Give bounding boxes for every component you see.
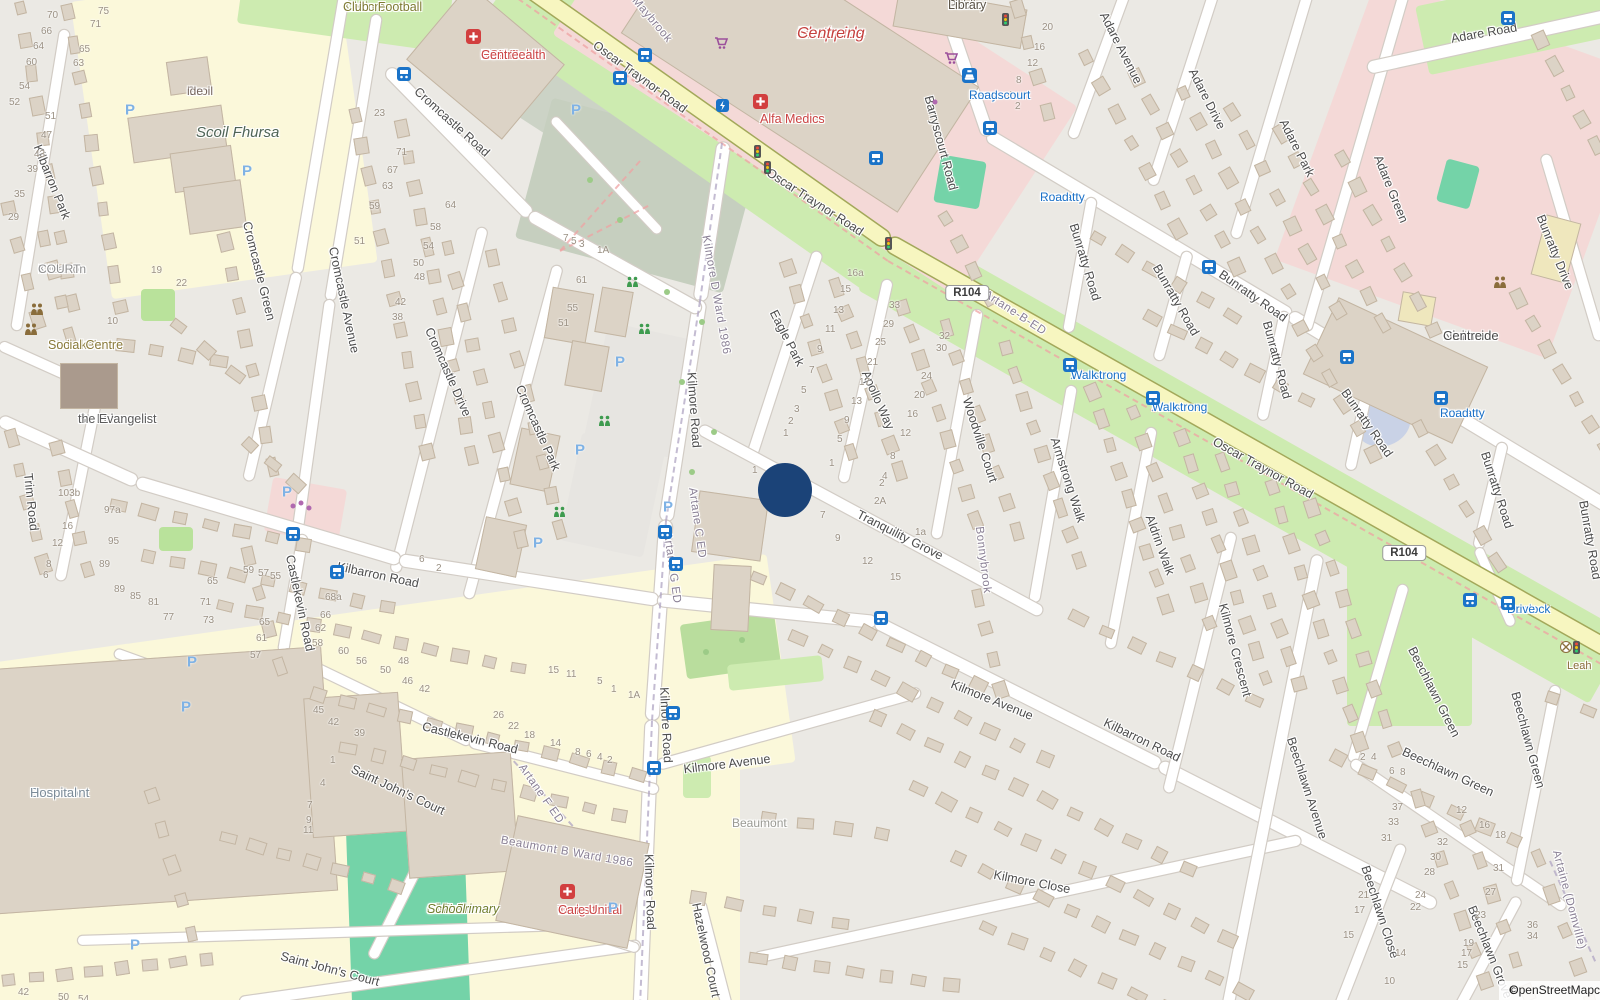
transit-stop-label-line: Road	[1440, 406, 1469, 420]
house-number: 23	[1475, 910, 1486, 921]
poi-label-line: Beaumont	[732, 816, 787, 830]
poi-label-line: Club	[343, 0, 369, 15]
house-number: 42	[419, 684, 430, 695]
shop-dot-icon	[299, 501, 304, 506]
house-number: 57	[258, 568, 269, 579]
house	[1222, 307, 1242, 324]
house	[138, 502, 160, 521]
parking-icon: P	[575, 442, 585, 459]
parking-icon: P	[130, 937, 140, 954]
route-ref-badge: R104	[1382, 545, 1426, 561]
house	[350, 592, 366, 609]
house-number: 8	[890, 451, 896, 462]
poi-label-line: Centre	[797, 25, 845, 44]
house-number: 16	[1479, 820, 1490, 831]
parking-icon: P	[181, 699, 191, 716]
landuse-area	[159, 527, 193, 551]
house	[903, 324, 920, 344]
house-number: 12	[862, 556, 873, 567]
house	[414, 208, 429, 227]
house-number: 51	[45, 111, 56, 122]
tree-icon	[664, 289, 670, 295]
house	[979, 920, 998, 936]
house-number: 26	[493, 710, 504, 721]
parking-icon: P	[615, 354, 625, 371]
house	[1196, 291, 1215, 309]
house-number: 50	[58, 992, 69, 1000]
house-number: 6	[43, 570, 49, 581]
house	[202, 518, 220, 532]
house-number: 67	[387, 165, 398, 176]
parking-icon: P	[125, 102, 135, 119]
house-number: 71	[90, 19, 101, 30]
level-crossing-icon	[1560, 641, 1574, 655]
house	[1127, 986, 1148, 1000]
house-number: 64	[33, 41, 44, 52]
house-number: 21	[867, 357, 878, 368]
house-number: 2	[436, 563, 442, 574]
house-number: 1	[611, 684, 617, 695]
house	[934, 791, 957, 812]
house	[796, 909, 813, 925]
house-number: 71	[396, 147, 407, 158]
house	[1071, 551, 1087, 570]
house-number: 6	[419, 554, 425, 565]
street-name-label: Kilmore Road	[684, 372, 703, 449]
house	[393, 636, 409, 651]
house	[949, 849, 966, 866]
house-number: 22	[508, 721, 519, 732]
house	[1509, 951, 1523, 968]
house-number: 32	[1437, 837, 1448, 848]
house	[450, 647, 470, 664]
house-number: 59	[243, 565, 254, 576]
house	[931, 404, 946, 422]
transit-stop-label-line: Road	[1040, 190, 1069, 204]
house	[142, 958, 159, 971]
location-marker[interactable]	[758, 463, 812, 517]
house	[1133, 889, 1154, 907]
house-number: 9	[835, 533, 841, 544]
poi-label-line: Centre	[481, 48, 519, 63]
house	[1230, 590, 1244, 606]
poi-label-line: Scoil Fhursa	[196, 124, 279, 142]
house-number: 1a	[915, 527, 926, 538]
road	[11, 29, 70, 331]
house	[1021, 35, 1035, 50]
house	[1270, 618, 1289, 639]
house	[29, 972, 45, 983]
house	[401, 351, 413, 369]
house	[370, 747, 386, 764]
house-number: 33	[889, 300, 900, 311]
house-number: 20	[914, 390, 925, 401]
house	[56, 966, 75, 981]
house	[1078, 48, 1094, 65]
house-number: 75	[98, 6, 109, 17]
house	[870, 670, 890, 687]
house-number: 43	[34, 149, 45, 160]
house	[1233, 508, 1249, 527]
house-number: 17	[1461, 948, 1472, 959]
map-canvas[interactable]: Oscar Traynor RoadOscar Traynor RoadOsca…	[0, 0, 1600, 1000]
house	[464, 445, 479, 466]
bus-stop-icon	[1434, 391, 1448, 405]
house	[1020, 833, 1042, 852]
house-number: 48	[398, 656, 409, 667]
house	[245, 363, 259, 379]
house-number: 31	[1381, 833, 1392, 844]
house	[1121, 833, 1142, 850]
house	[21, 273, 35, 292]
tree-icon	[739, 637, 745, 643]
house	[1597, 439, 1600, 459]
house	[1312, 618, 1329, 639]
taxi-rank-icon	[962, 68, 976, 82]
house-number: 30	[1430, 852, 1441, 863]
house	[1169, 524, 1185, 541]
house	[979, 722, 1001, 741]
house	[353, 136, 369, 155]
house-number: 29	[883, 319, 894, 330]
poi-label-line: COURT	[38, 262, 80, 276]
house-number: 42	[328, 717, 339, 728]
house	[1051, 849, 1068, 865]
house	[264, 455, 283, 473]
shop-dot-icon	[307, 506, 312, 511]
house-number: 15	[1343, 930, 1354, 941]
shop-dot-icon	[933, 100, 938, 105]
house	[998, 493, 1016, 512]
house-number: 7	[809, 365, 815, 376]
house-number: 58	[430, 222, 441, 233]
house	[1581, 414, 1600, 434]
house	[1016, 391, 1033, 412]
house	[1324, 649, 1338, 665]
house-number: 64	[445, 200, 456, 211]
house	[1263, 592, 1277, 609]
house	[37, 229, 51, 247]
house-number: 1	[783, 428, 789, 439]
house	[1205, 970, 1225, 986]
parking-icon: P	[533, 535, 543, 552]
bus-stop-icon	[658, 525, 672, 539]
bus-stop-icon	[330, 565, 344, 579]
house	[464, 337, 480, 352]
supermarket-icon	[944, 51, 958, 65]
house	[880, 969, 894, 983]
house	[1119, 929, 1140, 946]
house	[1067, 608, 1089, 627]
house-number: 10	[107, 316, 118, 327]
house	[787, 629, 808, 647]
house	[172, 511, 188, 525]
house	[72, 531, 87, 546]
openstreetmap-link[interactable]: OpenStreetMap	[1509, 983, 1594, 997]
house	[1170, 148, 1189, 168]
house	[845, 965, 865, 978]
house	[1258, 670, 1272, 686]
house	[993, 821, 1012, 837]
house	[1149, 942, 1167, 960]
house-number: 19	[151, 265, 162, 276]
house-number: 61	[576, 275, 587, 286]
house-number: 30	[936, 343, 947, 354]
house-number: 42	[395, 297, 406, 308]
poi-label-line: Alfa Medics	[760, 112, 825, 127]
house-number: 60	[338, 646, 349, 657]
building	[710, 564, 751, 632]
house	[1034, 445, 1052, 463]
house-number: 85	[130, 591, 141, 602]
bus-stop-icon	[669, 557, 683, 571]
tree-icon	[617, 217, 623, 223]
house	[1217, 166, 1239, 189]
street-name-label: Kilmore Road	[642, 854, 659, 930]
house-number: 11	[825, 324, 835, 335]
house-number: 70	[47, 10, 58, 21]
tree-icon	[711, 429, 717, 435]
playground-icon	[638, 323, 652, 337]
house-number: 66	[41, 26, 52, 37]
house	[251, 394, 268, 412]
street-name-label: Adare Park	[1277, 117, 1318, 179]
house	[18, 32, 33, 49]
house	[394, 118, 410, 138]
house-number: 48	[414, 272, 425, 283]
traffic-signal-icon	[1572, 641, 1586, 655]
house-number: 16	[907, 409, 918, 420]
house	[1091, 915, 1111, 934]
house	[960, 377, 975, 395]
house-number: 2	[1015, 101, 1021, 112]
house-number: 8	[1016, 75, 1022, 86]
house	[1115, 244, 1136, 264]
charging-station-icon	[716, 99, 730, 113]
poi-label-line: Social Centre	[48, 338, 123, 353]
house	[83, 134, 99, 152]
house-number: 60	[26, 57, 37, 68]
house	[1569, 391, 1584, 407]
bus-stop-icon	[1501, 11, 1515, 25]
parking-icon: P	[571, 102, 581, 119]
supermarket-icon	[714, 36, 728, 50]
house-number: 8	[46, 559, 52, 570]
house	[484, 248, 499, 267]
transit-stop-label-line: Road	[969, 88, 998, 102]
poi-label-line: Leah	[1567, 660, 1591, 673]
house	[1248, 641, 1264, 662]
house-number: 42	[18, 987, 29, 998]
traffic-signal-icon	[763, 161, 777, 175]
house-number: 36	[1527, 920, 1538, 931]
map-attribution: © OpenStreetMap contributors	[1499, 981, 1600, 1000]
road	[754, 835, 1301, 963]
house	[611, 808, 628, 823]
house	[869, 709, 887, 727]
house-number: 37	[1392, 802, 1403, 813]
building	[183, 179, 247, 235]
house-number: 32	[939, 331, 950, 342]
house	[1269, 188, 1286, 206]
house	[170, 556, 186, 569]
house	[1008, 777, 1029, 797]
house	[225, 364, 247, 384]
house	[986, 651, 1000, 668]
house-number: 56	[356, 656, 367, 667]
house	[1067, 807, 1084, 822]
house-number: 61	[256, 633, 267, 644]
house-number: 63	[73, 58, 84, 69]
house	[1124, 135, 1139, 151]
house-number: 45	[313, 705, 324, 716]
house-number: 24	[1415, 890, 1426, 901]
house	[54, 230, 68, 245]
medical-icon	[560, 884, 574, 898]
house-number: 5	[597, 676, 603, 687]
house-number: 71	[200, 597, 211, 608]
house	[1458, 500, 1475, 518]
house	[1111, 462, 1129, 481]
house	[1298, 392, 1316, 408]
house	[1061, 525, 1078, 543]
shop-dot-icon	[291, 504, 296, 509]
house	[29, 96, 46, 117]
house-number: 55	[270, 571, 281, 582]
house	[1154, 190, 1171, 210]
house-number: 4	[320, 778, 326, 789]
house	[148, 344, 164, 357]
house-number: 14	[550, 738, 561, 749]
bus-stop-icon	[647, 761, 661, 775]
house	[1009, 737, 1026, 753]
house	[1568, 957, 1587, 977]
bus-stop-icon	[286, 527, 300, 541]
house-number: 11	[566, 669, 576, 680]
house-number: 6	[1389, 766, 1395, 777]
house-number: 17	[859, 377, 870, 388]
house-number: 5	[571, 236, 577, 247]
house	[140, 548, 156, 564]
house-number: 7	[820, 510, 826, 521]
house-number: 2	[1360, 752, 1366, 763]
house	[393, 321, 408, 338]
house	[1180, 554, 1196, 573]
house	[1146, 462, 1164, 482]
house	[953, 710, 972, 727]
house-number: 47	[41, 130, 52, 141]
parking-icon: P	[242, 163, 252, 180]
house	[832, 917, 850, 930]
house	[1142, 309, 1163, 328]
house	[1163, 903, 1181, 921]
route-ref-badge: R104	[945, 285, 989, 301]
house-number: 2	[788, 416, 794, 427]
house-number: 5	[801, 385, 807, 396]
building	[544, 287, 594, 346]
house	[1, 973, 15, 986]
house	[1089, 230, 1106, 246]
house-number: 66	[320, 610, 331, 621]
house-number: 97a	[104, 505, 121, 516]
traffic-signal-icon	[884, 237, 898, 251]
community-centre-icon	[1493, 276, 1507, 290]
house	[896, 723, 916, 741]
house	[1007, 932, 1028, 950]
house	[1241, 535, 1260, 556]
house	[1040, 947, 1056, 962]
house-number: 62	[315, 623, 326, 634]
parking-icon: P	[663, 499, 673, 516]
house	[1078, 861, 1097, 880]
house	[1177, 956, 1195, 973]
bus-stop-icon	[613, 71, 627, 85]
house-number: 103b	[58, 488, 80, 499]
house	[1205, 140, 1222, 160]
house-number: 54	[78, 994, 89, 1000]
house-number: 8	[1400, 767, 1406, 778]
boundary-label: Bonnybrook	[973, 526, 993, 594]
house-number: 59	[369, 201, 380, 212]
house-number: 16	[1034, 42, 1045, 53]
house-number: 38	[392, 312, 403, 323]
house-number: 20	[1042, 22, 1053, 33]
house	[1036, 791, 1058, 811]
house	[748, 951, 768, 965]
landuse-area	[141, 289, 175, 321]
house	[1328, 748, 1348, 767]
house	[824, 389, 843, 411]
house	[1190, 583, 1209, 604]
house-number: 7	[563, 233, 569, 244]
house-number: 3	[794, 404, 800, 415]
house	[1579, 704, 1597, 719]
house-number: 17	[1354, 905, 1365, 916]
house	[232, 297, 246, 315]
house	[433, 298, 448, 316]
house	[966, 807, 984, 824]
house	[1252, 565, 1268, 582]
house	[942, 977, 960, 992]
house	[458, 417, 473, 436]
house	[114, 960, 130, 976]
house	[1104, 437, 1117, 453]
house	[1326, 560, 1340, 577]
house	[911, 974, 928, 987]
house-number: 33	[1388, 817, 1399, 828]
house-number: 35	[14, 189, 25, 200]
house-number: 9	[817, 344, 823, 355]
house-number: 39	[27, 164, 38, 175]
house	[259, 426, 273, 445]
house-number: 12	[1027, 58, 1038, 69]
house	[926, 697, 944, 714]
house	[240, 545, 256, 566]
poi-label-line: the Evangelist	[78, 412, 157, 427]
house-number: 81	[148, 597, 159, 608]
house-number: 5	[837, 434, 843, 445]
house-number: 15	[548, 665, 559, 676]
house-number: 21	[1358, 890, 1369, 901]
community-centre-icon	[30, 303, 44, 317]
house	[844, 656, 863, 674]
house-number: 57	[250, 650, 261, 661]
poi-label-line: School	[427, 902, 465, 917]
house	[100, 233, 116, 251]
house-number: 2	[879, 478, 885, 489]
house-number: 1	[752, 465, 758, 476]
bus-stop-icon	[666, 706, 680, 720]
